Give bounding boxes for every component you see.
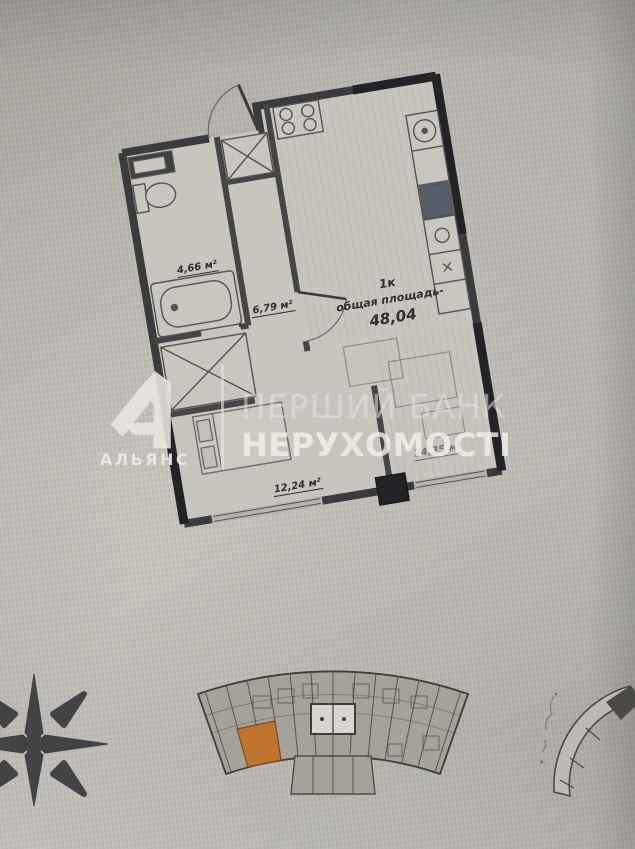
pen-marks <box>540 690 580 770</box>
shaft-icon <box>221 133 273 180</box>
wardrobe-icon <box>161 333 256 410</box>
floorplan-photo: 4,66 м² 6,79 м² 12,24 м² 24,35 м² 1к общ… <box>0 0 635 849</box>
compass-rose-icon <box>0 668 108 820</box>
building-minimap <box>183 656 483 806</box>
apartment-floorplan: 4,66 м² 6,79 м² 12,24 м² 24,35 м² 1к общ… <box>118 76 502 524</box>
entrance-door-arc <box>201 83 258 139</box>
fridge-icon <box>419 182 453 219</box>
photo-shadow-top <box>0 0 635 70</box>
column-marker <box>375 473 409 506</box>
stove-icon <box>273 100 324 139</box>
elevator-core <box>311 704 355 734</box>
floorplan-svg: 4,66 м² 6,79 м² 12,24 м² 24,35 м² 1к общ… <box>118 76 502 524</box>
apartment-type-label: 1к <box>378 275 397 292</box>
